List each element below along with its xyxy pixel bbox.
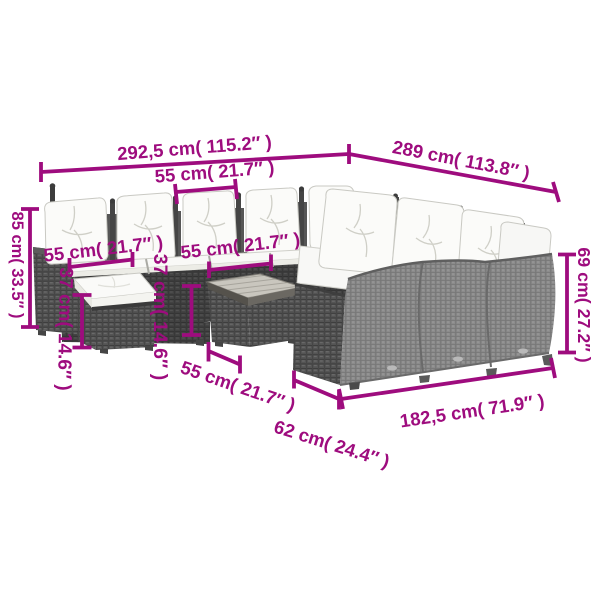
svg-text:85 cm( 33.5″ ): 85 cm( 33.5″ ) [8,212,26,319]
svg-text:69 cm( 27.2″ ): 69 cm( 27.2″ ) [574,247,594,362]
svg-text:37 cm( 14.6″ ): 37 cm( 14.6″ ) [53,267,76,391]
svg-text:37 cm( 14.6″ ): 37 cm( 14.6″ ) [149,254,171,380]
